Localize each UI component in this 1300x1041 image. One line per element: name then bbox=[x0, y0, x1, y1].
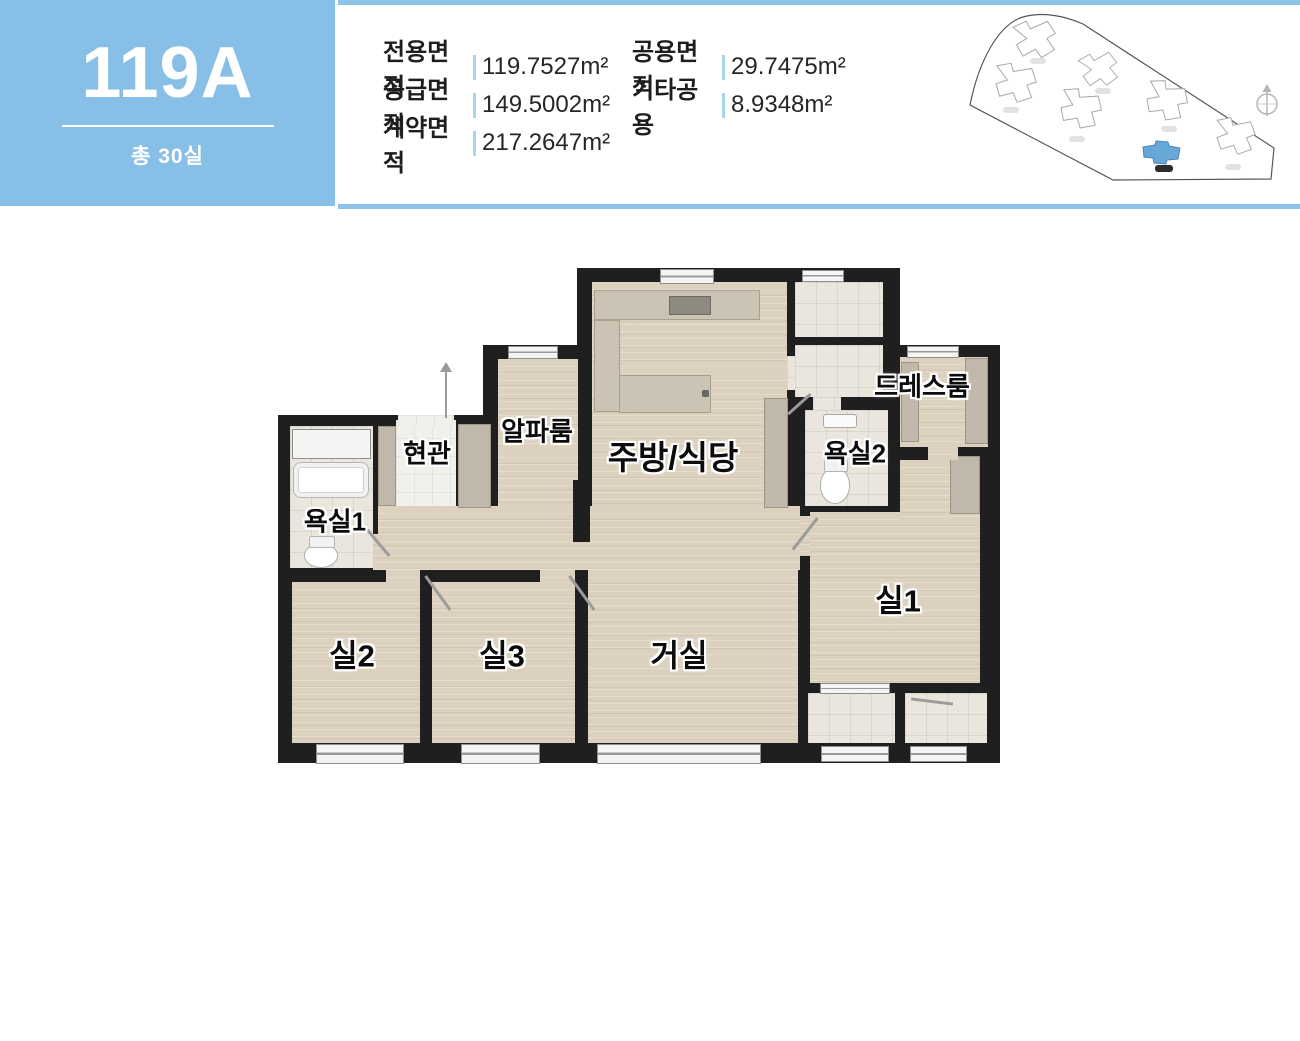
site-building-outline bbox=[1012, 18, 1058, 61]
spec-separator bbox=[473, 93, 476, 118]
spec-value: 149.5002m² bbox=[482, 91, 594, 119]
site-building-number-pill bbox=[1069, 136, 1085, 142]
spec-separator bbox=[722, 93, 725, 118]
room2-window bbox=[316, 744, 404, 764]
badge-divider bbox=[62, 125, 274, 127]
spec-separator bbox=[722, 55, 725, 80]
entry-direction-arrow bbox=[440, 362, 452, 418]
site-plan-map bbox=[965, 12, 1290, 184]
site-building-number-pill bbox=[1095, 88, 1111, 94]
site-building-outline bbox=[1077, 48, 1121, 90]
header-top-rule bbox=[338, 0, 1300, 5]
utility-room-floor bbox=[795, 282, 883, 337]
site-building-number-pill bbox=[1225, 164, 1241, 170]
bath1-bathtub bbox=[293, 462, 369, 498]
site-building-number-pill bbox=[1161, 126, 1177, 132]
spec-row: 계약면적 217.2647m² bbox=[383, 124, 594, 162]
label-entrance: 현관 bbox=[403, 434, 451, 471]
spec-value: 8.9348m² bbox=[731, 91, 831, 119]
header-bottom-rule bbox=[338, 204, 1300, 209]
alpha-room-window bbox=[508, 346, 558, 359]
site-building-outline bbox=[993, 62, 1038, 104]
bath1-toilet bbox=[304, 544, 338, 568]
site-building-number-pill bbox=[1030, 58, 1046, 64]
unit-total-count: 총 30실 bbox=[131, 140, 204, 170]
spec-row: 기타공용 8.9348m² bbox=[632, 86, 831, 124]
entry-closet bbox=[378, 426, 396, 506]
room3-window bbox=[461, 744, 540, 764]
site-building-outline bbox=[1142, 77, 1191, 124]
site-building-number-pill bbox=[1155, 165, 1173, 172]
utility-room-window bbox=[802, 270, 844, 282]
kitchen-tall-cabinet bbox=[764, 398, 788, 508]
label-alpha-room: 알파룸 bbox=[501, 412, 573, 449]
passage-door-opening bbox=[787, 356, 795, 390]
site-building-number-pill bbox=[1003, 107, 1019, 113]
spec-label: 기타공용 bbox=[632, 70, 720, 140]
kitchen-island bbox=[619, 375, 711, 413]
label-room2: 실2 bbox=[329, 631, 375, 676]
room2-door-opening bbox=[386, 570, 420, 582]
site-building-highlighted bbox=[1143, 141, 1180, 164]
dress-room-window bbox=[907, 346, 959, 358]
living-room-window bbox=[597, 744, 761, 764]
bath1-side-wall bbox=[373, 426, 378, 534]
spec-label: 계약면적 bbox=[383, 108, 471, 178]
room1-balcony-door bbox=[820, 683, 890, 694]
bath-passage-floor bbox=[795, 345, 883, 397]
balcony-b-window bbox=[910, 746, 967, 762]
kitchen-stove bbox=[669, 296, 711, 315]
unit-type-badge: 119A 총 30실 bbox=[0, 0, 335, 206]
label-kitchen-dining: 주방/식당 bbox=[608, 431, 739, 479]
spec-value: 119.7527m² bbox=[482, 53, 594, 81]
bath2-sink bbox=[823, 414, 857, 428]
area-spec-column-2: 공용면적 29.7475m² 기타공용 8.9348m² bbox=[632, 48, 831, 124]
kitchen-hall-wall-stub bbox=[573, 480, 590, 542]
balcony-a-floor bbox=[808, 693, 895, 743]
compass-icon bbox=[1257, 84, 1277, 116]
unit-type-title: 119A bbox=[81, 37, 253, 109]
bath2-toilet bbox=[820, 468, 850, 504]
site-buildings-group bbox=[993, 18, 1256, 172]
shoe-closet bbox=[458, 424, 491, 508]
kitchen-window bbox=[660, 269, 714, 284]
bath1-window bbox=[292, 429, 371, 459]
label-dress-room: 드레스룸 bbox=[874, 367, 970, 404]
label-room1: 실1 bbox=[875, 576, 921, 621]
spec-separator bbox=[473, 131, 476, 156]
label-bath1: 욕실1 bbox=[304, 502, 366, 539]
balcony-a-window bbox=[821, 746, 889, 762]
area-spec-column-1: 전용면적 119.7527m² 공급면적 149.5002m² 계약면적 217… bbox=[383, 48, 594, 162]
spec-value: 217.2647m² bbox=[482, 129, 594, 157]
floor-plan: 주방/식당 드레스룸 욕실2 욕실1 현관 알파룸 실1 실2 실3 거실 bbox=[278, 266, 1004, 766]
spec-value: 29.7475m² bbox=[731, 53, 831, 81]
kitchen-island-sink bbox=[702, 390, 709, 397]
bath2-door-opening bbox=[813, 397, 841, 410]
spec-separator bbox=[473, 55, 476, 80]
label-living-room: 거실 bbox=[650, 631, 707, 676]
kitchen-counter-side bbox=[594, 320, 620, 412]
label-bath2: 욕실2 bbox=[824, 434, 886, 471]
dress-room-door-opening bbox=[928, 447, 958, 460]
room1-wardrobe bbox=[950, 456, 980, 514]
label-room3: 실3 bbox=[479, 631, 525, 676]
